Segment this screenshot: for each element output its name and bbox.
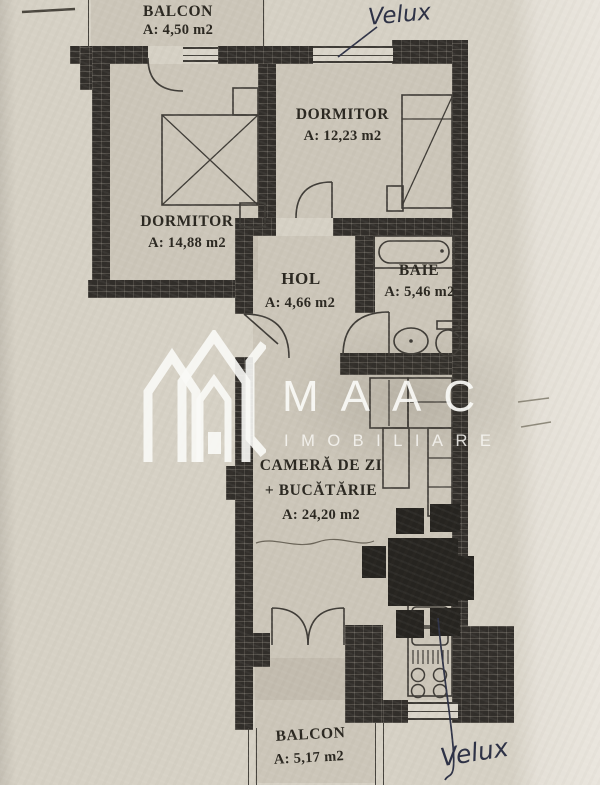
- room-label-bedroom-right: DORMITOR: [270, 106, 415, 123]
- kitchen-cabinet-2: [408, 378, 452, 428]
- washbasin-drain-dot: [409, 339, 413, 343]
- room-area-bathroom: A: 5,46 m2: [372, 285, 467, 301]
- dining-chair-3: [396, 610, 424, 638]
- room-area-bedroom-right: A: 12,23 m2: [270, 129, 415, 145]
- door-swing-french-right: [308, 608, 344, 645]
- nightstand-1: [233, 88, 258, 115]
- door-swing-entry: [244, 314, 289, 358]
- double-bed-diagonals: [162, 115, 258, 205]
- stove-burner-1: [412, 669, 425, 682]
- door-swing-balcony-top: [148, 58, 183, 91]
- toilet-tank: [437, 321, 459, 329]
- floorplan-photo: BALCON A: 4,50 m2 DORMITOR A: 12,23 m2 D…: [0, 0, 600, 785]
- bathtub-inner: [379, 241, 449, 263]
- kitchen-cabinet-3: [428, 428, 452, 516]
- room-area-balcony-top: A: 4,50 m2: [93, 23, 263, 39]
- door-swing-french-left: [272, 608, 308, 645]
- dining-chair-2: [430, 504, 460, 532]
- room-label-hall: HOL: [268, 270, 334, 289]
- bathtub-drain-dot: [440, 249, 444, 253]
- dining-chair-5: [362, 546, 386, 578]
- dining-chair-1: [396, 508, 424, 534]
- room-area-living: A: 24,20 m2: [255, 508, 387, 524]
- dining-table: [388, 538, 458, 606]
- room-label-living-line1: CAMERĂ DE ZI: [255, 457, 387, 474]
- room-label-bathroom: BAIE: [383, 262, 455, 279]
- paper-crease-line: [256, 539, 374, 544]
- door-swing-bathroom: [343, 312, 389, 356]
- faint-marks-right: [518, 398, 551, 427]
- pen-dash-top-left: [22, 9, 75, 12]
- door-swing-bedroom-right: [296, 182, 332, 218]
- room-label-balcony-top: BALCON: [93, 3, 263, 20]
- pen-pointer-top: [338, 27, 377, 57]
- room-label-living-line2: + BUCĂTĂRIE: [255, 482, 387, 499]
- room-area-bedroom-left: A: 14,88 m2: [112, 236, 262, 252]
- dining-chair-4: [430, 608, 460, 636]
- room-area-hall: A: 4,66 m2: [250, 296, 350, 312]
- room-label-bedroom-left: DORMITOR: [112, 213, 262, 230]
- nightstand-3: [387, 186, 403, 211]
- dining-table-extension: [456, 556, 474, 600]
- toilet-bowl: [436, 330, 460, 356]
